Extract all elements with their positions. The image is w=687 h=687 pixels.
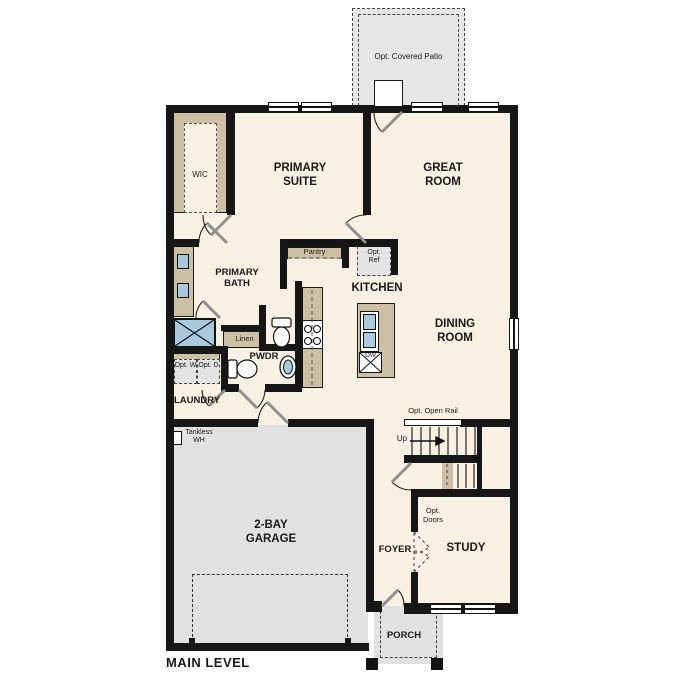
room-label-dining-room: DINING ROOM	[430, 318, 480, 345]
room-label-kitchen: KITCHEN	[345, 282, 409, 296]
window-suite-1	[268, 102, 299, 112]
wall-top	[166, 105, 518, 113]
wall-garage-top-left	[166, 419, 258, 427]
room-label-pwdr: PWDR	[240, 351, 288, 362]
wall-pantry-left	[280, 239, 287, 289]
wall-powder-bottom-left	[221, 384, 239, 392]
island-sink-1	[363, 314, 376, 330]
wall-garage-top-right	[288, 419, 373, 427]
room-label-linen: Linen	[223, 335, 266, 344]
wic-floor	[184, 123, 217, 213]
label-up: Up	[394, 434, 410, 443]
room-label-pantry: Pantry	[287, 248, 342, 257]
wall-powder-bottom-right	[265, 384, 302, 392]
room-label-patio: Opt. Covered Patio	[352, 52, 465, 61]
room-label-opt-d: Opt. D	[197, 362, 220, 370]
wall-kitchen-top	[283, 239, 398, 247]
plan-title: MAIN LEVEL	[166, 655, 296, 670]
label-dw: DW	[359, 352, 382, 360]
wall-foyer-study-upper	[411, 497, 418, 532]
wall-wc-bottom	[259, 344, 302, 351]
window-study-2	[464, 604, 496, 614]
room-label-garage: 2-BAY GARAGE	[241, 519, 301, 546]
label-opt-doors: Opt. Doors	[418, 507, 448, 525]
window-study-1	[430, 604, 462, 614]
label-tankless-wh: Tankless WH	[182, 429, 216, 446]
window-dining	[509, 318, 519, 350]
room-label-opt-w: Opt. W	[174, 362, 197, 370]
room-label-opt-ref: Opt. Ref	[364, 249, 384, 266]
room-label-primary-bath: PRIMARY BATH	[212, 267, 262, 289]
wall-pantry-stub	[342, 239, 349, 268]
window-greatroom-2	[468, 102, 499, 112]
wall-garage-right	[366, 419, 374, 611]
room-label-study: STUDY	[440, 542, 492, 556]
range	[302, 320, 323, 349]
wall-stair-bottom	[411, 489, 518, 497]
wall-bath-top	[166, 239, 199, 247]
patio-door-slab	[374, 80, 403, 107]
shower	[173, 318, 216, 348]
window-suite-2	[301, 102, 332, 112]
room-label-wic: WIC	[173, 170, 227, 179]
garage-door-dash	[192, 574, 348, 642]
wall-stair-top	[460, 419, 518, 427]
wall-ref-stub	[391, 239, 398, 275]
wall-wic-right	[227, 105, 235, 215]
porch-post-right	[431, 658, 443, 670]
room-label-great-room: GREAT ROOM	[417, 162, 469, 189]
window-greatroom-1	[411, 102, 443, 112]
wall-bath-laundry	[166, 346, 228, 354]
wall-garage-bottom	[166, 643, 369, 651]
wall-suite-greatroom	[363, 105, 371, 215]
room-label-foyer: FOYER	[369, 544, 421, 555]
porch-post-left	[366, 658, 378, 670]
bath-sink-2	[177, 283, 189, 298]
stair-lower-rail	[442, 463, 453, 489]
wall-foyer-study-lower	[411, 572, 418, 605]
room-label-laundry: LAUNDRY	[170, 395, 224, 406]
island-sink-2	[363, 332, 376, 348]
wall-left	[166, 105, 174, 651]
room-label-porch: PORCH	[380, 630, 428, 641]
wall-stair-landing	[404, 455, 482, 463]
wall-stair-stringer	[477, 426, 482, 490]
floor-plan: Opt. Covered Patio PRIMARY SUITE GREAT R…	[0, 0, 687, 687]
label-opt-open-rail: Opt. Open Rail	[400, 407, 466, 416]
open-rail-bar	[404, 419, 462, 426]
room-label-primary-suite: PRIMARY SUITE	[270, 162, 330, 189]
wall-counter-back	[295, 281, 302, 392]
wall-right	[510, 105, 518, 614]
bath-sink-1	[177, 254, 189, 269]
